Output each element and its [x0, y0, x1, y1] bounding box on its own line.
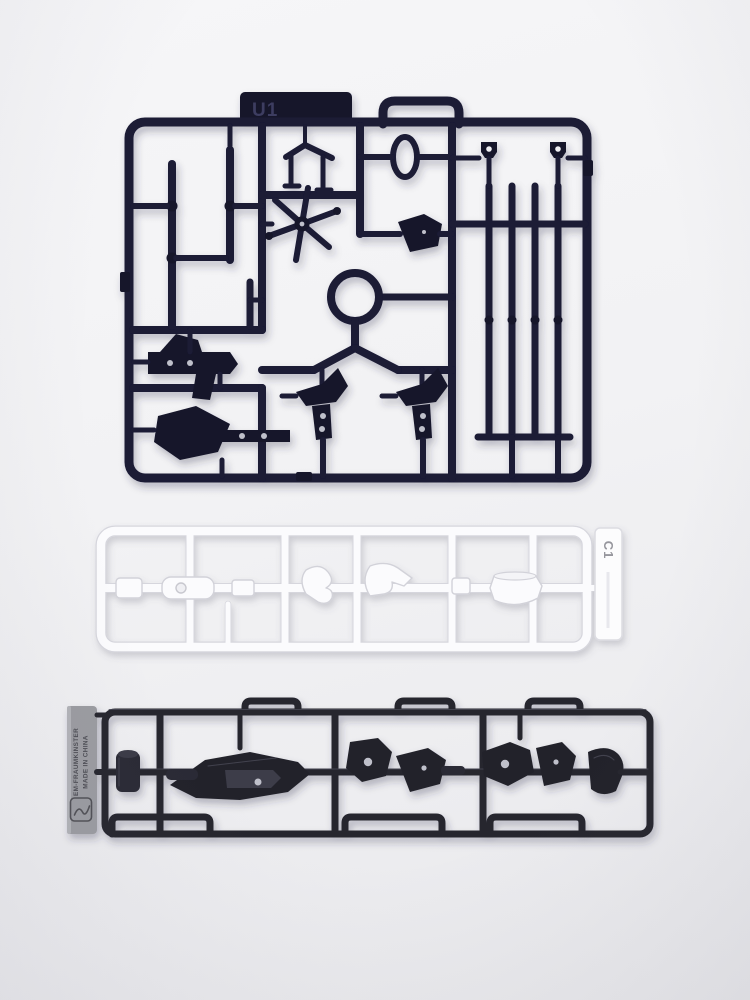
maker-name-label: EM-FRAUMKINSTER: [73, 728, 80, 796]
arm-part: [162, 577, 214, 599]
joint-parts-right: [482, 742, 576, 786]
blade-assembly-part: [166, 752, 310, 800]
ankle-guard-part: [588, 748, 650, 794]
wing-part: [133, 406, 290, 476]
clamp-parts: [452, 142, 585, 186]
wedge-part: [452, 578, 470, 594]
runner-c1-tag: C1: [595, 528, 622, 640]
sprue-photo: U1: [0, 0, 750, 1000]
rod-parts: [133, 126, 262, 326]
long-rod-parts: [478, 186, 570, 476]
connector-part: [232, 580, 254, 596]
cylinder-part-left: [116, 750, 140, 792]
buckle-part: [360, 137, 452, 177]
pistol-part-left: [282, 368, 348, 476]
curved-part: [302, 566, 332, 603]
magazine-part: [360, 214, 452, 252]
socket-part: [116, 578, 142, 598]
runner-c1: C1: [101, 528, 622, 647]
runner-em-tag: EM-FRAUMKINSTER MADE IN CHINA: [67, 706, 106, 834]
runner-em: EM-FRAUMKINSTER MADE IN CHINA: [67, 701, 650, 834]
runner-c1-tag-label: C1: [601, 541, 616, 560]
sprue-photo-canvas: U1: [0, 0, 750, 1000]
joint-parts-left: [346, 738, 465, 792]
runner-u1: U1: [120, 92, 593, 481]
antenna-part: [285, 126, 332, 190]
origin-label: MADE IN CHINA: [83, 735, 90, 789]
pistol-part-right: [382, 368, 448, 476]
ring-part: [314, 273, 398, 370]
